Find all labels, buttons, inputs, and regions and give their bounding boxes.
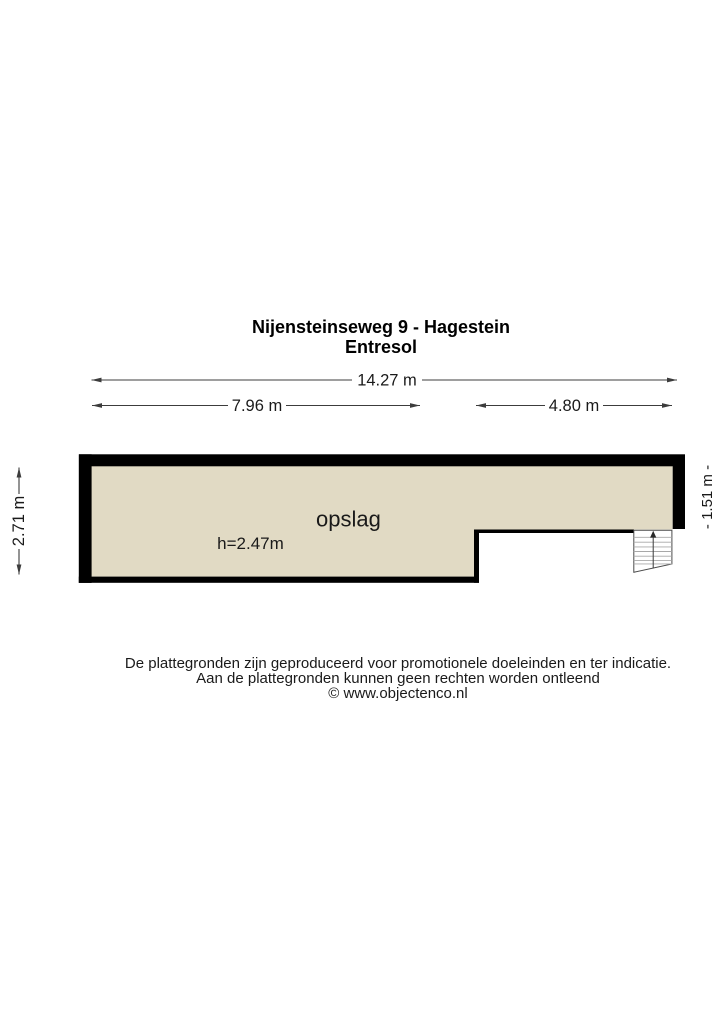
svg-text:2.71 m: 2.71 m: [10, 496, 28, 546]
svg-text:- 1.51 m -: - 1.51 m -: [699, 465, 716, 529]
svg-text:h=2.47m: h=2.47m: [217, 534, 284, 553]
svg-text:7.96 m: 7.96 m: [232, 397, 282, 415]
svg-text:opslag: opslag: [316, 506, 381, 531]
svg-text:14.27 m: 14.27 m: [357, 371, 417, 389]
svg-text:4.80 m: 4.80 m: [549, 397, 599, 415]
